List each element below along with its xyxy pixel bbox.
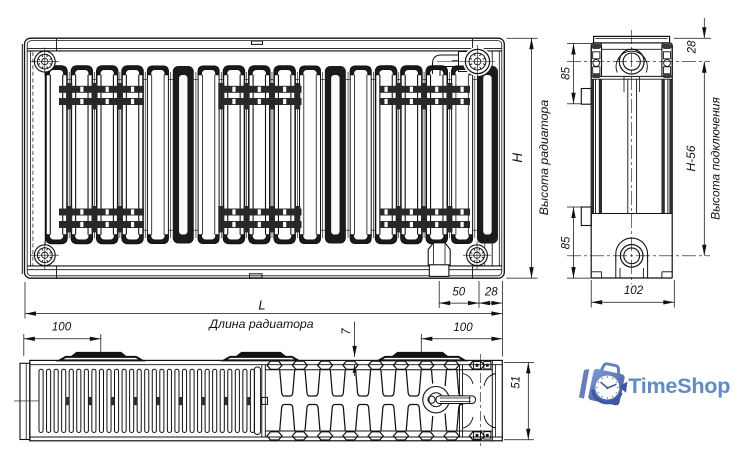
svg-text:85: 85 (561, 67, 573, 80)
svg-text:H-56: H-56 (684, 145, 698, 171)
svg-text:50: 50 (452, 286, 465, 298)
svg-text:85: 85 (561, 236, 573, 249)
svg-text:28: 28 (484, 286, 498, 298)
svg-text:Длина радиатора: Длина радиатора (207, 317, 313, 331)
svg-text:Высота радиатора: Высота радиатора (537, 100, 551, 216)
svg-text:Высота подключения: Высота подключения (709, 97, 723, 220)
svg-text:100: 100 (52, 322, 72, 334)
svg-text:L: L (258, 298, 265, 313)
svg-text:100: 100 (453, 322, 473, 334)
svg-text:102: 102 (624, 285, 644, 297)
svg-text:7: 7 (341, 328, 353, 335)
svg-text:H: H (510, 153, 525, 163)
svg-text:51: 51 (511, 376, 523, 389)
svg-text:28: 28 (687, 40, 699, 54)
svg-text:TimeShop: TimeShop (628, 373, 730, 398)
